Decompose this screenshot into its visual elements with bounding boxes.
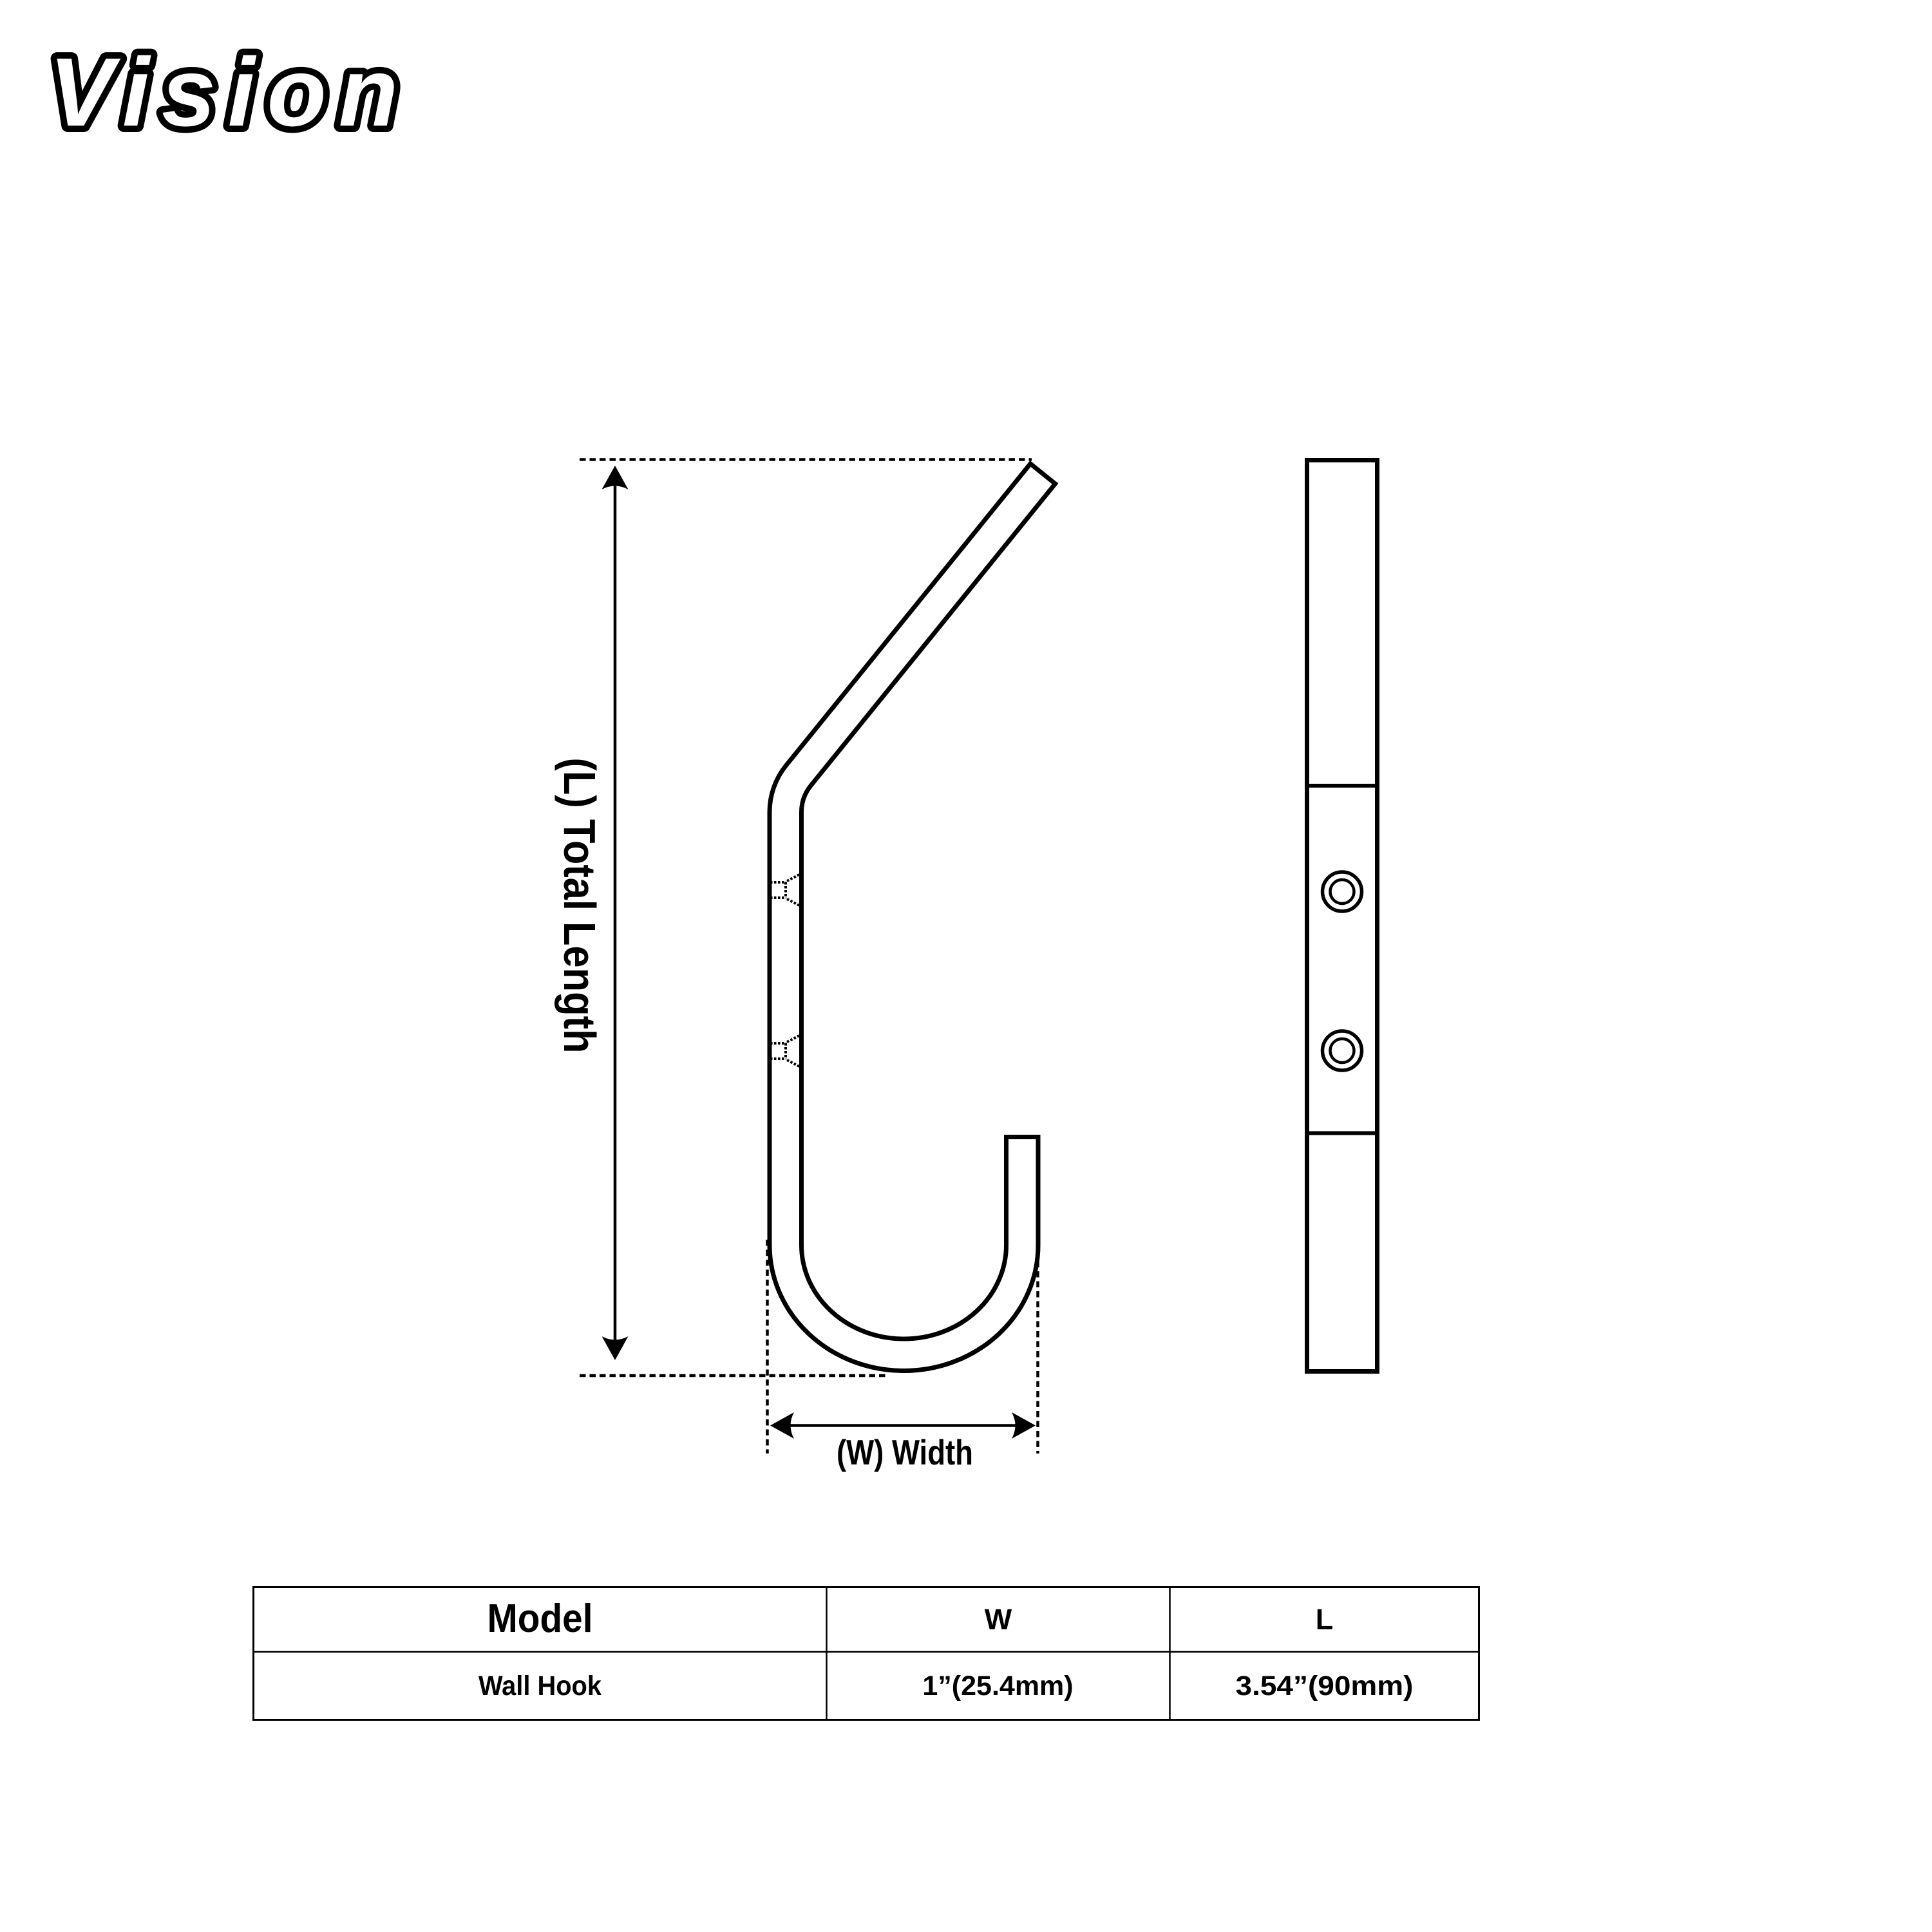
svg-text:1”(25.4mm): 1”(25.4mm) xyxy=(922,1671,1073,1701)
svg-text:Model: Model xyxy=(488,1596,593,1641)
svg-text:Wall Hook: Wall Hook xyxy=(478,1671,601,1701)
svg-text:L: L xyxy=(1316,1603,1334,1636)
svg-text:3.54”(90mm): 3.54”(90mm) xyxy=(1236,1671,1414,1701)
svg-text:W: W xyxy=(985,1603,1012,1636)
svg-text:(L) Total Length: (L) Total Length xyxy=(554,758,605,1054)
svg-text:(W) Width: (W) Width xyxy=(837,1432,973,1472)
